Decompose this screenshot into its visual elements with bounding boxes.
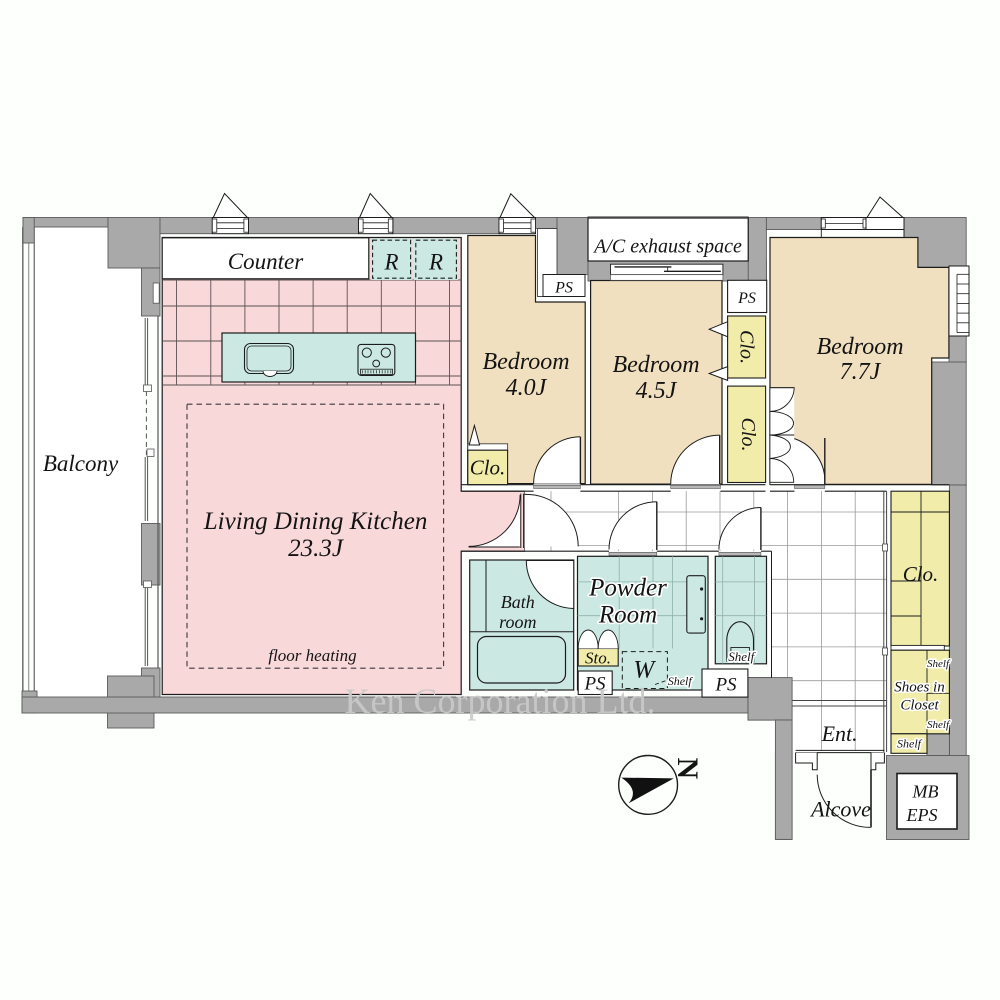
svg-text:Room: Room (598, 602, 657, 629)
svg-text:Ken Corporation Ltd.: Ken Corporation Ltd. (345, 681, 656, 721)
svg-text:Balcony: Balcony (43, 451, 119, 476)
svg-text:4.5J: 4.5J (636, 378, 678, 404)
svg-text:Clo.: Clo. (470, 456, 506, 480)
svg-text:Living Dining Kitchen: Living Dining Kitchen (203, 508, 428, 535)
svg-text:Bedroom: Bedroom (612, 352, 699, 378)
svg-text:Shelf: Shelf (728, 649, 756, 664)
svg-text:N: N (671, 758, 704, 780)
svg-text:Counter: Counter (228, 249, 304, 274)
svg-text:W: W (633, 657, 656, 684)
svg-text:23.3J: 23.3J (288, 535, 345, 562)
svg-text:Bedroom: Bedroom (482, 349, 569, 375)
svg-text:4.0J: 4.0J (506, 375, 548, 401)
svg-text:Shelf: Shelf (927, 658, 951, 670)
svg-text:Shoes in: Shoes in (894, 680, 944, 696)
svg-text:MB: MB (912, 782, 939, 802)
svg-text:A/C exhaust space: A/C exhaust space (592, 236, 742, 258)
svg-text:Sto.: Sto. (585, 649, 611, 668)
svg-text:Powder: Powder (588, 575, 667, 602)
svg-text:Closet: Closet (900, 698, 939, 714)
svg-text:Shelf: Shelf (668, 674, 694, 688)
svg-text:7.7J: 7.7J (840, 359, 882, 385)
svg-text:R: R (428, 250, 443, 275)
svg-text:PS: PS (714, 675, 737, 696)
svg-text:Shelf: Shelf (927, 719, 951, 731)
svg-text:Ent.: Ent. (821, 721, 858, 746)
svg-text:Clo.: Clo. (736, 330, 758, 364)
svg-text:Alcove: Alcove (809, 797, 871, 822)
svg-text:R: R (383, 250, 398, 275)
svg-text:PS: PS (554, 280, 573, 297)
svg-text:Bath: Bath (501, 592, 535, 612)
svg-text:PS: PS (737, 290, 756, 307)
svg-text:Clo.: Clo. (903, 562, 939, 586)
svg-text:room: room (499, 612, 536, 632)
svg-text:Shelf: Shelf (897, 737, 923, 751)
svg-text:EPS: EPS (906, 805, 938, 825)
svg-text:Clo.: Clo. (737, 418, 759, 452)
svg-text:floor heating: floor heating (268, 646, 356, 665)
svg-text:Bedroom: Bedroom (816, 334, 903, 360)
